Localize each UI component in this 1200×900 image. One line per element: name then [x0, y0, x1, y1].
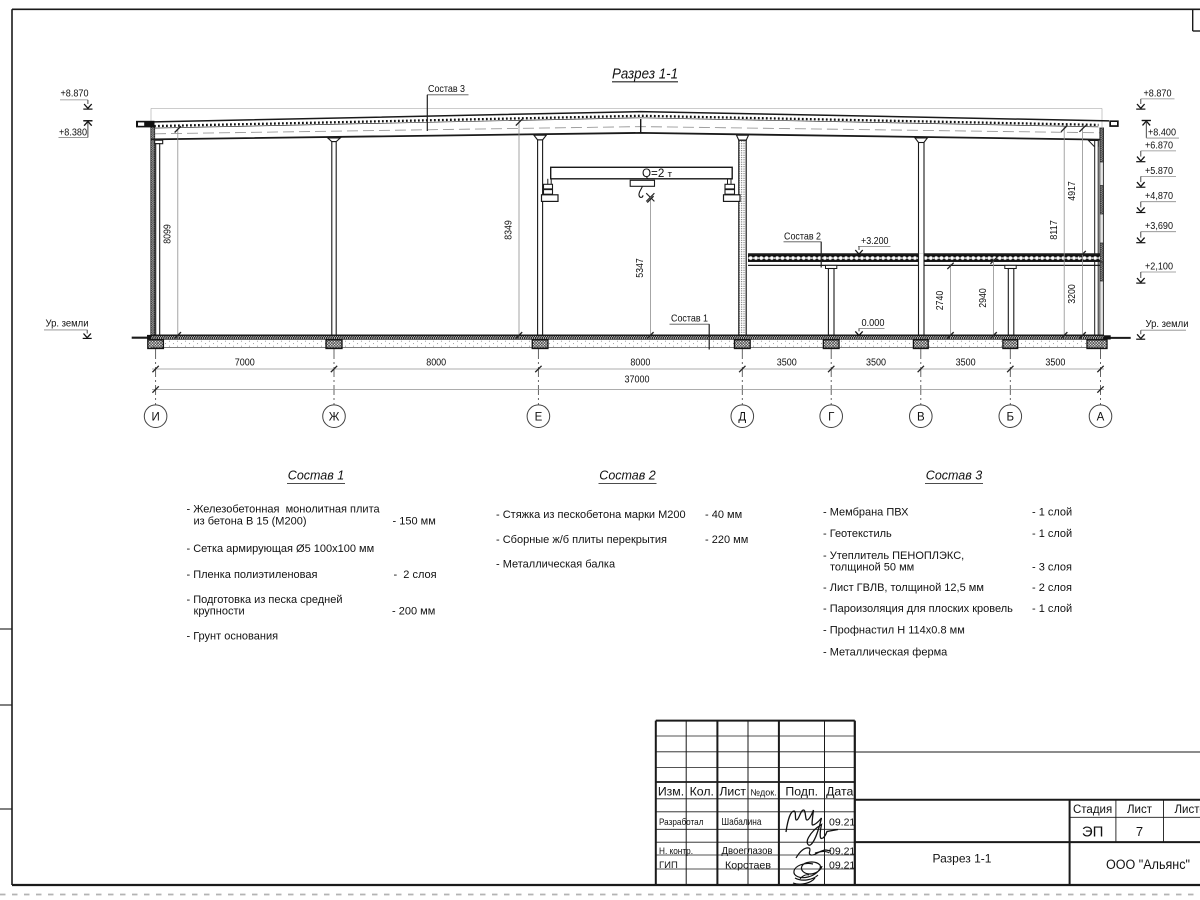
svg-text:Ур. земли: Ур. земли	[46, 318, 89, 329]
svg-text:Ур. земли: Ур. земли	[1146, 319, 1189, 330]
svg-text:+4,870: +4,870	[1145, 191, 1173, 202]
svg-text:+8.870: +8.870	[1144, 88, 1172, 99]
svg-text:Е: Е	[535, 411, 543, 423]
svg-text:- Утеплитель ПЕНОПЛЭКС,: - Утеплитель ПЕНОПЛЭКС,	[823, 550, 964, 562]
svg-text:3500: 3500	[1045, 357, 1065, 368]
svg-text:3500: 3500	[866, 357, 886, 368]
svg-text:Двоеглазов: Двоеглазов	[722, 845, 773, 857]
svg-text:Ж: Ж	[329, 411, 340, 423]
svg-text:Листов: Листов	[1175, 804, 1200, 816]
svg-text:Состав 3: Состав 3	[428, 84, 465, 95]
svg-text:- 150 мм: - 150 мм	[393, 515, 436, 527]
svg-text:Кол.: Кол.	[690, 784, 714, 798]
svg-text:Состав 2: Состав 2	[599, 469, 655, 483]
svg-text:- 1 слой: - 1 слой	[1032, 507, 1072, 519]
svg-text:- Лист ГВЛВ, толщиной 12,5 мм: - Лист ГВЛВ, толщиной 12,5 мм	[823, 582, 984, 594]
svg-text:А: А	[1097, 411, 1105, 423]
svg-text:- 2 слоя: - 2 слоя	[394, 569, 437, 581]
svg-text:Б: Б	[1007, 411, 1015, 423]
svg-text:3200: 3200	[1067, 284, 1078, 304]
svg-text:- 40 мм: - 40 мм	[705, 509, 742, 521]
svg-text:- Железобетонная монолитная п: - Железобетонная монолитная плита	[187, 504, 381, 516]
svg-text:- Мембрана ПВХ: - Мембрана ПВХ	[823, 507, 909, 519]
svg-text:+8.400: +8.400	[1148, 127, 1176, 138]
svg-text:Состав 2: Состав 2	[784, 232, 821, 243]
svg-text:+6.870: +6.870	[1145, 140, 1173, 151]
svg-text:крупности: крупности	[194, 606, 245, 618]
svg-text:37000: 37000	[625, 375, 650, 386]
svg-text:+8.870: +8.870	[61, 88, 89, 99]
svg-text:Стадия: Стадия	[1073, 804, 1112, 816]
svg-text:- Пароизоляция для плоских кро: - Пароизоляция для плоских кровель	[823, 603, 1013, 615]
svg-text:Подп.: Подп.	[785, 784, 818, 798]
svg-text:8000: 8000	[426, 357, 446, 368]
svg-text:- 1 слой: - 1 слой	[1032, 528, 1072, 540]
svg-text:В: В	[917, 411, 925, 423]
svg-text:Состав 3: Состав 3	[926, 469, 982, 483]
svg-text:7: 7	[1136, 824, 1143, 839]
svg-text:Состав 1: Состав 1	[288, 469, 344, 483]
svg-text:Изм.: Изм.	[658, 784, 684, 798]
svg-text:- 3 слоя: - 3 слоя	[1032, 562, 1072, 574]
svg-text:8099: 8099	[162, 224, 173, 244]
svg-text:ООО "Альянс": ООО "Альянс"	[1106, 857, 1190, 872]
svg-text:8117: 8117	[1049, 220, 1060, 240]
svg-text:- Металлическая ферма: - Металлическая ферма	[823, 647, 948, 659]
svg-text:И: И	[151, 411, 159, 423]
svg-text:Лист: Лист	[719, 784, 746, 798]
svg-text:- Металлическая балка: - Металлическая балка	[496, 559, 616, 571]
svg-text:№док.: №док.	[750, 788, 776, 798]
svg-text:толщиной 50 мм: толщиной 50 мм	[830, 562, 914, 574]
svg-text:+3.200: +3.200	[861, 236, 889, 247]
svg-text:- Пленка полиэтиленовая: - Пленка полиэтиленовая	[187, 569, 318, 581]
svg-text:- Подготовка из песка средней: - Подготовка из песка средней	[187, 594, 343, 606]
svg-text:Д: Д	[738, 411, 746, 423]
svg-text:- Сетка армирующая Ø5 100х100: - Сетка армирующая Ø5 100х100 мм	[187, 543, 375, 555]
svg-text:Q=2 т: Q=2 т	[642, 168, 673, 180]
svg-text:+5.870: +5.870	[1145, 166, 1173, 177]
svg-text:3500: 3500	[777, 357, 797, 368]
svg-text:3500: 3500	[956, 357, 976, 368]
svg-text:8349: 8349	[503, 220, 514, 240]
svg-text:Г: Г	[828, 411, 835, 423]
svg-text:- Сборные ж/б плиты перекрытия: - Сборные ж/б плиты перекрытия	[496, 534, 667, 546]
svg-text:7000: 7000	[235, 357, 255, 368]
svg-text:Разработал: Разработал	[659, 817, 704, 828]
svg-text:09.21: 09.21	[829, 817, 855, 829]
svg-text:- Стяжка из пескобетона марки: - Стяжка из пескобетона марки М200	[496, 509, 686, 521]
svg-text:2740: 2740	[935, 290, 946, 310]
svg-text:2940: 2940	[978, 288, 989, 308]
svg-text:+3,690: +3,690	[1145, 221, 1173, 232]
svg-text:5347: 5347	[635, 258, 646, 278]
svg-text:+8.380: +8.380	[59, 128, 87, 139]
svg-text:Разрез 1-1: Разрез 1-1	[933, 852, 992, 866]
svg-text:Дата: Дата	[826, 784, 853, 798]
svg-text:- 200 мм: - 200 мм	[392, 606, 435, 618]
svg-text:+2,100: +2,100	[1145, 261, 1173, 272]
svg-text:Лист: Лист	[1127, 804, 1153, 816]
svg-text:- 220 мм: - 220 мм	[705, 534, 748, 546]
svg-text:Коротаев: Коротаев	[725, 859, 771, 871]
svg-text:ЭП: ЭП	[1082, 823, 1104, 840]
svg-text:Шабалина: Шабалина	[722, 816, 762, 828]
svg-text:Состав 1: Состав 1	[671, 314, 708, 325]
svg-text:8000: 8000	[630, 357, 650, 368]
svg-text:- Геотекстиль: - Геотекстиль	[823, 528, 892, 540]
svg-text:Разрез 1-1: Разрез 1-1	[612, 67, 678, 83]
svg-text:- Грунт основания: - Грунт основания	[187, 630, 279, 642]
svg-text:4917: 4917	[1067, 181, 1078, 201]
svg-text:- Профнастил Н 114х0.8 мм: - Профнастил Н 114х0.8 мм	[823, 625, 965, 637]
svg-text:ГИП: ГИП	[659, 860, 678, 871]
svg-text:из бетона В 15 (М200): из бетона В 15 (М200)	[194, 515, 307, 527]
svg-text:- 1 слой: - 1 слой	[1032, 603, 1072, 615]
svg-text:- 2 слоя: - 2 слоя	[1032, 582, 1072, 594]
svg-text:Н. контр.: Н. контр.	[659, 846, 693, 857]
svg-text:09.21: 09.21	[829, 860, 855, 872]
svg-text:0.000: 0.000	[862, 318, 885, 329]
svg-text:09.21: 09.21	[829, 846, 855, 858]
